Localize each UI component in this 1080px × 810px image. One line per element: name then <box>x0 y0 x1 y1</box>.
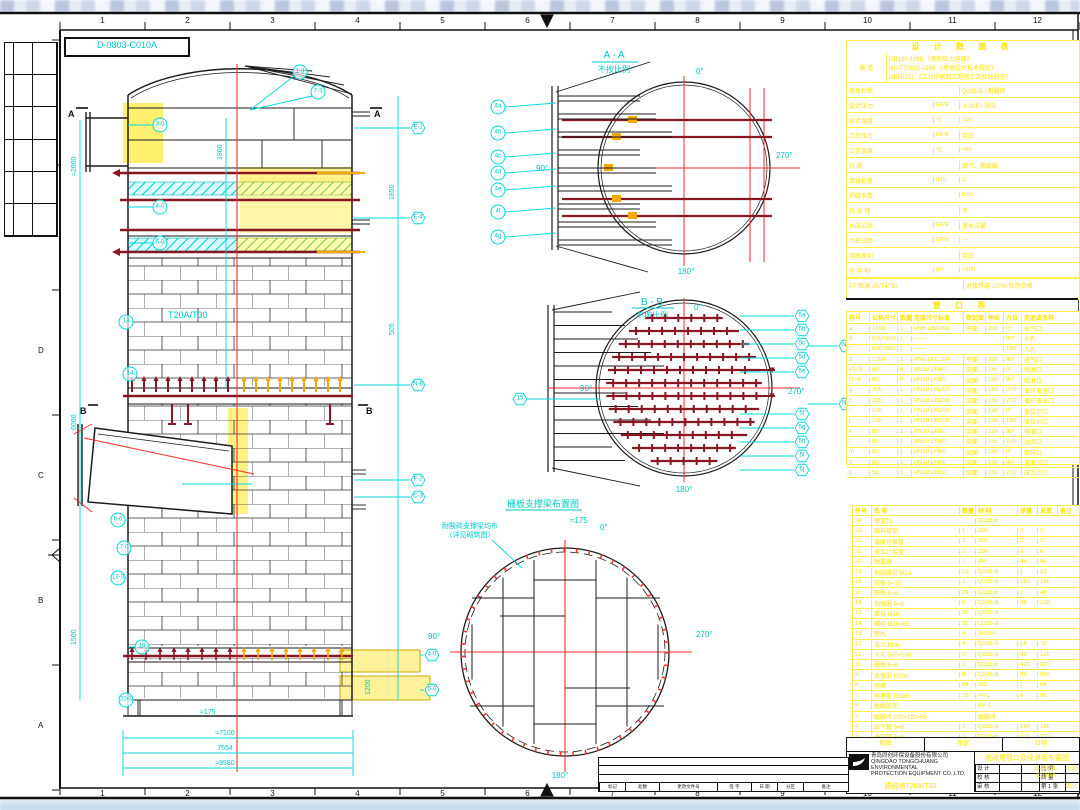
table-cell: 突面 <box>963 386 985 395</box>
revision-label: 更改文件号 <box>659 783 717 791</box>
table-cell: 2 <box>1037 528 1057 534</box>
table-row: 7喷淋管 DN8016PVC696 <box>853 691 1079 701</box>
table-cell: —— <box>911 346 963 352</box>
bb-hex-tag: 5j <box>795 464 810 477</box>
table-cell: PN10 DN200 <box>911 387 963 393</box>
table-cell: 液位计口 <box>1021 417 1079 426</box>
table-cell: 喷淋口 <box>1021 376 1079 385</box>
table-cell: 支撑梁 H200 <box>871 671 959 680</box>
table-cell: PN10 DN200 <box>911 398 963 404</box>
table-cell: 9 <box>853 672 871 678</box>
table-cell: MPa <box>933 237 959 243</box>
bb-hex-tag: 5c <box>795 338 810 351</box>
table-cell: 烟气、稀硫酸 <box>959 161 1079 170</box>
table-header-cell: 用途或名称 <box>1021 313 1079 322</box>
design-data-table: 设 计 数 据 表 规 范 GB150-1998 《钢制压力容器》 HG/T20… <box>846 40 1080 300</box>
table-cell: -0.005 / 常压 <box>959 101 1079 110</box>
tower-left-circle-tag: 14 <box>123 367 138 382</box>
signature-cell: 审 核 <box>975 783 999 792</box>
table-cell: 0° <box>1003 326 1021 332</box>
table-cell: 突面 <box>963 396 985 405</box>
table-cell: 工作压力 <box>847 131 933 140</box>
revision-row <box>599 758 848 766</box>
revision-strip: 标记处数更改文件号签 字日 期分区备注 <box>598 757 849 792</box>
table-cell: 20# <box>975 549 1017 555</box>
table-cell: 法兰 PN6 <box>871 640 959 649</box>
table-row: l801PN10 DN80突面150270°溢流口 <box>847 437 1079 447</box>
table-cell: ℃ <box>933 147 959 154</box>
table-cell: e1~8 <box>847 367 869 373</box>
table-cell: 2 <box>959 177 1079 183</box>
table-cell: 8 <box>959 672 975 678</box>
title-block: 制图 审定 日期 青岛同创环保设备股份有限公司 QINGDAO TONGCHUA… <box>846 737 1080 794</box>
table-cell: 150 <box>985 377 1003 383</box>
table-row: 14螺栓 M16×6032Q235-B <box>853 619 1079 629</box>
table-cell: 1 <box>897 326 911 332</box>
table-cell: 72 <box>1037 641 1057 647</box>
revision-label: 分区 <box>777 783 803 791</box>
table-cell: Q235-B <box>975 621 1017 627</box>
table-row: b500×5001——90°人孔 <box>847 334 1079 344</box>
table-cell: 气密试验 <box>847 236 933 245</box>
company-logo <box>849 754 869 770</box>
table-cell: 48 <box>1037 590 1057 596</box>
tower-dome-circle-tag: 7-3 <box>311 85 326 100</box>
table-cell: 1 <box>897 429 911 435</box>
table-cell: 200 <box>985 326 1003 332</box>
table-cell: 1 <box>897 439 911 445</box>
table-cell: 90° <box>1003 377 1021 383</box>
table-row: 11人孔 500×5002Q235-B60120 <box>853 650 1079 660</box>
table-cell: Q235-B <box>975 610 1017 616</box>
table-cell: 加强圈 δ=8 <box>871 599 959 608</box>
table-cell: 90° <box>1003 460 1021 466</box>
table-cell: ≤80 <box>959 147 1079 153</box>
table-cell: 18 <box>853 579 871 585</box>
table-cell: 4 <box>853 724 871 730</box>
table-cell: 地脚螺栓 M24 <box>871 568 959 577</box>
table-cell: 溢流口 <box>1021 437 1079 446</box>
table-header-cell: 材 料 <box>975 506 1017 515</box>
table-cell: l <box>847 439 869 445</box>
table-cell: 循环液进口 <box>1021 386 1079 395</box>
table-cell: 取样接管 <box>871 526 959 535</box>
table-cell: 1 <box>959 538 975 544</box>
table-row: 19地脚螺栓 M2412Q235-B112 <box>853 567 1079 577</box>
table-cell: 180 <box>1017 724 1037 730</box>
table-cell: k <box>847 429 869 435</box>
table-cell: 50 <box>869 449 897 455</box>
table-cell: 突面 <box>963 427 985 436</box>
table-cell: 90° <box>1003 429 1021 435</box>
signature-cell <box>1021 783 1039 792</box>
table-cell: 常压 <box>959 131 1079 140</box>
tower-left-circle-tag: 13 <box>119 315 134 330</box>
table-cell: Q235-B <box>975 724 1017 730</box>
table-cell: 64 <box>959 682 975 688</box>
table-cell: 50 <box>869 470 897 476</box>
table-row: h2001PN10 DN200突面150270°循环液出口 <box>847 396 1079 406</box>
table-row: 工作温度℃≤80 <box>847 143 1079 158</box>
table-cell: 8 <box>897 377 911 383</box>
table-cell: 500×500 <box>869 346 897 352</box>
table-cell: n <box>847 460 869 466</box>
table-cell: 平面 <box>963 355 985 364</box>
nozzle-schedule-table: 符号公称尺寸数量连接尺寸标准密封面伸出方位用途或名称 a14001PN6 DN1… <box>846 311 1080 465</box>
bom-table-header: 件号名 称数量材 料单重总重备注 <box>853 506 1079 516</box>
table-cell: a <box>847 326 869 332</box>
table-cell: 8 <box>853 682 871 688</box>
design-table-rows: 塔体材质Q235-B / 耐酸砖设计压力MPa-0.005 / 常压设计温度℃1… <box>847 83 1079 278</box>
table-cell: 270° <box>1003 439 1021 445</box>
table-cell: 38 <box>1017 600 1037 606</box>
table-cell: 200 <box>985 357 1003 363</box>
cad-drawing-sheet: A A B B T20A/T30 ≈2000 6000 <box>0 0 1080 810</box>
signature-cell <box>999 783 1021 792</box>
table-cell: 热 处 理 <box>847 206 933 215</box>
table-cell: 1200 <box>869 357 897 363</box>
tower-left-circle-tag: 6-0 <box>111 513 126 528</box>
table-cell: 设计压力 <box>847 101 933 110</box>
table-cell: PN10 DN50 <box>911 449 963 455</box>
revision-row <box>599 766 848 774</box>
table-row: 热 处 理不 <box>847 203 1079 218</box>
table-cell: PN6 DN1400 <box>911 326 963 332</box>
tower-bottom-right-hex-tag: 4-0 <box>425 649 440 662</box>
table-row: 12法兰 PN64Q235-A1872 <box>853 640 1079 650</box>
table-cell: 0.85 <box>959 192 1079 198</box>
nozzle-table-header: 符号公称尺寸数量连接尺寸标准密封面伸出方位用途或名称 <box>847 312 1079 324</box>
bb-hex-tag: 5b <box>795 324 810 337</box>
table-cell: 150 <box>985 418 1003 424</box>
table-cell: 1 <box>897 336 911 342</box>
table-cell: 32 <box>959 621 975 627</box>
table-cell: 150 <box>985 398 1003 404</box>
table-row: k801PN10 DN80突面15090°排液口 <box>847 427 1079 437</box>
signature-cell: 设 计 <box>975 765 999 774</box>
table-cell: 筋板 δ=8 <box>871 588 959 597</box>
tower-right-hex-tag: F-2 <box>411 474 426 487</box>
table-cell: 150 <box>985 367 1003 373</box>
table-cell: PN6 DN1200 <box>911 357 963 363</box>
table-cell: 200 <box>869 387 897 393</box>
table-cell: 11 <box>853 652 871 658</box>
tower-left-circle-tag: 19 <box>135 640 150 655</box>
table-cell: 12 <box>1037 569 1057 575</box>
table-cell: c <box>847 346 869 352</box>
table-cell: 耐酸砖 230×113×65 <box>871 712 959 721</box>
table-row: d12001PN6 DN1200平面20090°进气口 <box>847 355 1079 365</box>
table-cell: PN10 DN100 <box>911 408 963 414</box>
tower-left-circle-tag: 4-0 <box>153 200 168 215</box>
aa-circle-tag: 4b <box>491 126 506 141</box>
table-cell: Q235-B <box>975 579 1017 585</box>
table-row: 9支撑梁 H2008Q235-B85680 <box>853 670 1079 680</box>
table-cell: 420 <box>1037 662 1057 668</box>
table-cell: 除雾器 <box>871 557 959 566</box>
signature-cell: 校 核 <box>975 774 999 783</box>
table-row: 5耐酸砖 230×113×65耐酸砖 <box>853 712 1079 722</box>
table-cell: 150 <box>985 408 1003 414</box>
table-cell: 喷淋口 <box>1021 365 1079 374</box>
table-cell: 4 <box>959 631 975 637</box>
table-cell: 平面 <box>963 324 985 333</box>
table-cell: 1 <box>897 398 911 404</box>
table-cell: 6 <box>853 703 871 709</box>
table-cell: PN10 DN50 <box>911 470 963 476</box>
tower-left-circle-tag: 7-0 <box>117 541 132 556</box>
table-cell: 24 <box>959 590 975 596</box>
table-row: g2001PN10 DN200突面150270°循环液进口 <box>847 386 1079 396</box>
table-cell: 18 <box>1017 641 1037 647</box>
table-cell: Q235-B <box>975 652 1017 658</box>
table-cell: 1 <box>897 387 911 393</box>
table-header-cell: 方位 <box>1003 313 1021 322</box>
tower-right-hex-tag: C-3 <box>411 491 426 504</box>
title-block-top-row: 制图 审定 日期 <box>847 738 1079 752</box>
table-cell: PN10 DN80 <box>911 367 963 373</box>
table-cell: 2 <box>1017 538 1037 544</box>
table-cell: 0° <box>1003 367 1021 373</box>
table-cell: PN10 DN80 <box>911 439 963 445</box>
table-cell: 23 <box>853 528 871 534</box>
bb-hex-tag: 5f <box>795 408 810 421</box>
revision-row <box>599 775 848 783</box>
table-row: 20除雾器1PP4545 <box>853 557 1079 567</box>
table-cell: 20# <box>975 528 1017 534</box>
bb-hex-tag: 5i <box>795 450 810 463</box>
table-cell: 1400 <box>869 326 897 332</box>
table-cell: h <box>847 398 869 404</box>
table-cell: 0° <box>1003 449 1021 455</box>
aa-circle-tag: 4d <box>491 166 506 181</box>
table-cell: 腐蚀裕量 <box>847 176 933 185</box>
table-cell: 2 <box>959 652 975 658</box>
table-cell: 液位计接管 <box>871 547 959 556</box>
table-cell: PN10 DN50 <box>911 460 963 466</box>
table-cell: 16 <box>959 693 975 699</box>
bb-hex-tag: 5a <box>795 310 810 323</box>
tower-left-circle-tag: 5-0 <box>153 236 168 251</box>
company-name: 青岛同创环保设备股份有限公司 QINGDAO TONGCHUANG ENVIRO… <box>871 753 974 777</box>
table-cell: 150 <box>985 449 1003 455</box>
aa-circle-tag: 4c <box>491 150 506 165</box>
table-cell: m³ <box>933 267 959 273</box>
table-cell: 150 <box>985 470 1003 476</box>
table-row: 气密试验MPa— <box>847 233 1079 248</box>
table-cell: PN10 DN80 <box>911 429 963 435</box>
table-header-cell: 连接尺寸标准 <box>911 313 963 322</box>
table-row: 全 容 积m³≈280 <box>847 263 1079 278</box>
table-cell: 排液口 <box>1021 427 1079 436</box>
table-cell: 2 <box>959 549 975 555</box>
table-cell: 150 <box>985 387 1003 393</box>
table-header-cell: 单重 <box>1017 506 1037 515</box>
table-row: j1001PN10 DN100突面150180°液位计口 <box>847 417 1079 427</box>
design-footer-left: PT 检测 JB/T4730 <box>847 281 963 290</box>
table-cell: b <box>847 336 869 342</box>
nozzle-table-rows: a14001PN6 DN1400平面2000°出气口b500×5001——90°… <box>847 324 1079 478</box>
table-header-cell: 符号 <box>847 313 869 322</box>
table-cell: 19 <box>853 569 871 575</box>
product-name: 脱硫塔T20A/T30 <box>847 781 974 791</box>
table-cell: 出气管 δ=8 <box>871 722 959 731</box>
revision-label: 签 字 <box>717 783 751 791</box>
drawing-number: D-0803- C010A <box>1014 765 1078 779</box>
table-cell: MPa <box>933 222 959 228</box>
table-header-cell: 伸出 <box>985 313 1003 322</box>
table-cell: 100 <box>869 418 897 424</box>
table-cell: 水压试验 <box>847 221 933 230</box>
table-cell: 270° <box>1003 398 1021 404</box>
table-cell: 420 <box>1017 662 1037 668</box>
table-cell: 85 <box>1017 672 1037 678</box>
table-cell: 突面 <box>963 458 985 467</box>
table-row: 介 质烟气、稀硫酸 <box>847 158 1079 173</box>
table-cell: d <box>847 357 869 363</box>
table-row: 设计温度℃150 <box>847 113 1079 128</box>
table-cell: 垫片 <box>871 629 959 638</box>
table-cell: 1 <box>897 460 911 466</box>
table-cell: 1 <box>897 346 911 352</box>
aa-circle-tag: 4e <box>491 183 506 198</box>
table-cell: 228 <box>1037 600 1057 606</box>
table-row: 4出气管 δ=81Q235-B180180 <box>853 722 1079 732</box>
table-cell: Q235-B <box>975 672 1017 678</box>
table-cell: 1 <box>959 662 975 668</box>
table-cell: 1 <box>959 559 975 565</box>
drawing-title: 脱硫塔管口及喷淋层布置图 <box>975 753 1079 763</box>
table-row: p501PN10 DN50突面150270°压力计口 <box>847 468 1079 478</box>
table-cell: 温度计接管 <box>871 537 959 546</box>
table-cell: 耐酸砖 <box>975 712 1017 721</box>
table-cell: 150 <box>985 460 1003 466</box>
table-cell: 取样口 <box>1021 448 1079 457</box>
signature-cell: 共 1 张 <box>1065 783 1079 792</box>
table-cell: 5 <box>853 713 871 719</box>
table-row: 塔体材质Q235-B / 耐酸砖 <box>847 83 1079 98</box>
table-cell: 12 <box>853 641 871 647</box>
table-row: 工作压力MPa常压 <box>847 128 1079 143</box>
table-cell: p <box>847 470 869 476</box>
table-cell: MPa <box>933 102 959 108</box>
bom-table-rows: 24保温钉Q235-B23取样接管120#2222温度计接管120#2221液位… <box>853 516 1079 763</box>
table-row: 6耐酸胶泥KP-1 <box>853 701 1079 711</box>
table-cell: 人孔 <box>1021 345 1079 354</box>
table-row: 设计压力MPa-0.005 / 常压 <box>847 98 1079 113</box>
table-row: i1001PN10 DN100突面1500°液位计口 <box>847 406 1079 416</box>
table-cell: 45 <box>1017 559 1037 565</box>
table-cell: 盛水试漏 <box>959 221 1079 230</box>
table-cell: Q235-B / 耐酸砖 <box>959 86 1079 95</box>
table-header-cell: 密封面 <box>963 313 985 322</box>
table-cell: 人孔 <box>1021 334 1079 343</box>
table-cell: PN10 DN100 <box>911 418 963 424</box>
table-cell: g <box>847 387 869 393</box>
table-cell: 工作温度 <box>847 146 933 155</box>
table-cell: —— <box>911 336 963 342</box>
table-cell: 1 <box>897 357 911 363</box>
table-cell: 120 <box>1037 652 1057 658</box>
table-cell: 80 <box>869 429 897 435</box>
table-row: e1~8808PN10 DN80突面1500°喷淋口 <box>847 365 1079 375</box>
table-cell: 2 <box>1037 538 1057 544</box>
table-cell: 螺母 M16 <box>871 609 959 618</box>
table-cell: 容器类别 <box>847 251 933 260</box>
table-cell: 80 <box>869 377 897 383</box>
bb-hex-tag: 5h <box>795 436 810 449</box>
table-header-cell: 数量 <box>897 313 911 322</box>
table-cell: 突面 <box>963 365 985 374</box>
table-cell: 3 <box>1017 549 1037 555</box>
table-cell: 2 <box>1017 590 1037 596</box>
bb-left-hex-tag: 15 <box>513 393 528 406</box>
table-cell: 500×500 <box>869 336 897 342</box>
table-cell: 90° <box>1003 357 1021 363</box>
spec-lines: GB150-1998 《钢制压力容器》 HG/T20652-1998 《塔器设计… <box>887 53 1079 82</box>
table-cell: 1 <box>959 579 975 585</box>
table-cell: — <box>959 237 1079 243</box>
table-row: n501PN10 DN50突面15090°温度计口 <box>847 458 1079 468</box>
table-header-cell: 名 称 <box>871 506 959 515</box>
design-table-title: 设 计 数 据 表 <box>847 41 1079 53</box>
aa-circle-tag: 4f <box>491 205 506 220</box>
title-block-company-cell: 青岛同创环保设备股份有限公司 QINGDAO TONGCHUANG ENVIRO… <box>847 752 975 792</box>
signature-cell: 第 1 张 <box>1039 783 1065 792</box>
table-cell: 0° <box>1003 408 1021 414</box>
table-row: 23取样接管120#22 <box>853 526 1079 536</box>
table-row: m501PN10 DN50突面1500°取样口 <box>847 448 1079 458</box>
table-cell: 160 <box>1017 579 1037 585</box>
table-cell: 6 <box>1037 549 1057 555</box>
table-row: 18底板 δ=121Q235-B160160 <box>853 578 1079 588</box>
table-cell: 焊缝系数 <box>847 191 933 200</box>
table-cell: 200 <box>869 398 897 404</box>
table-cell: 12 <box>959 569 975 575</box>
table-header-cell: 备注 <box>1057 506 1079 515</box>
table-cell: 1 <box>959 528 975 534</box>
revision-label: 备注 <box>803 783 848 791</box>
aa-circle-tag: 4a <box>491 100 506 115</box>
table-cell: 1 <box>1017 682 1037 688</box>
table-cell: 10 <box>853 662 871 668</box>
table-row: 22温度计接管120#22 <box>853 537 1079 547</box>
table-cell: 160 <box>1037 579 1057 585</box>
table-row: 21液位计接管220#36 <box>853 547 1079 557</box>
table-row: 16加强圈 δ=86Q235-B38228 <box>853 598 1079 608</box>
table-cell: 150 <box>959 117 1079 123</box>
table-row: a14001PN6 DN1400平面2000°出气口 <box>847 324 1079 334</box>
table-cell: 180° <box>1003 418 1021 424</box>
table-cell: 1 <box>959 724 975 730</box>
table-cell: Q235-B <box>975 590 1017 596</box>
bb-hex-tag: 5g <box>795 422 810 435</box>
table-cell: j <box>847 418 869 424</box>
table-cell: 20# <box>975 538 1017 544</box>
tower-bottom-right-hex-tag: 5-0 <box>425 684 440 697</box>
table-header-cell: 公称尺寸 <box>869 313 897 322</box>
table-cell: 液位计口 <box>1021 407 1079 416</box>
table-cell: Q235-B <box>975 518 1017 524</box>
table-cell: i <box>847 408 869 414</box>
table-cell: Q235-A <box>975 641 1017 647</box>
table-row: 容器类别常压 <box>847 248 1079 263</box>
table-cell: 270° <box>1003 387 1021 393</box>
tower-left-circle-tag: 20-3 <box>119 693 134 708</box>
table-cell: 64 <box>1037 682 1057 688</box>
table-cell: 螺栓 M16×60 <box>871 619 959 628</box>
bb-hex-tag: 5e <box>795 366 810 379</box>
